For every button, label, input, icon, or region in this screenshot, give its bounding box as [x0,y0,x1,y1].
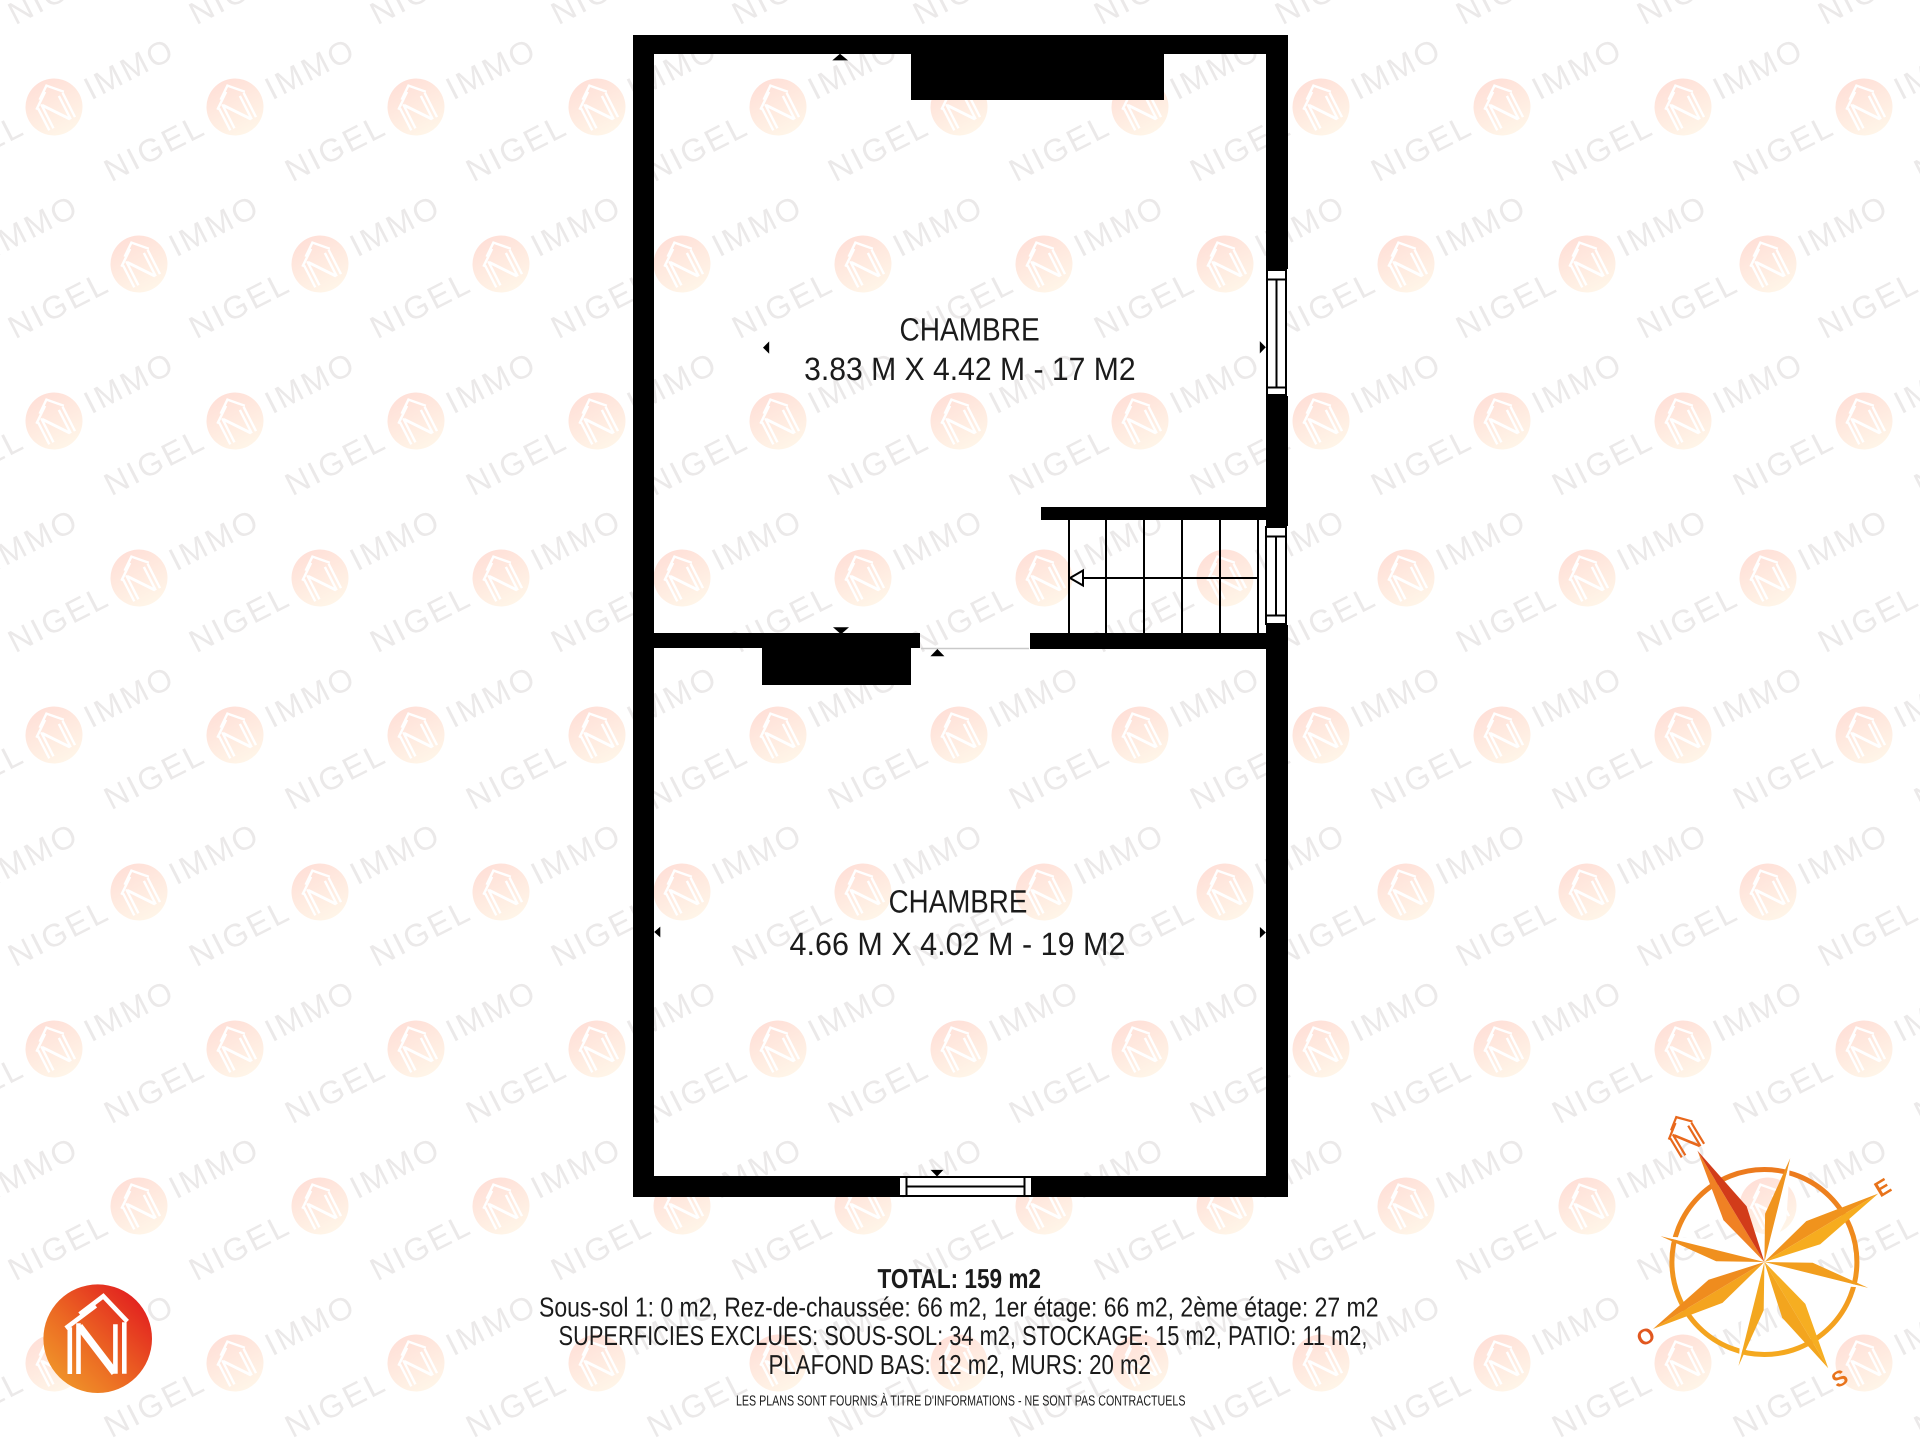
svg-text:LES PLANS SONT FOURNIS À TITRE: LES PLANS SONT FOURNIS À TITRE D'INFORMA… [736,1393,1186,1410]
svg-text:S: S [1827,1364,1852,1393]
svg-text:TOTAL: 159 m2: TOTAL: 159 m2 [878,1263,1042,1294]
svg-text:CHAMBRE: CHAMBRE [889,883,1028,919]
svg-text:O: O [1632,1321,1660,1351]
svg-text:PLAFOND BAS: 12 m2, MURS: 20 m: PLAFOND BAS: 12 m2, MURS: 20 m2 [769,1349,1152,1380]
svg-text:Sous-sol 1: 0 m2, Rez-de-chaus: Sous-sol 1: 0 m2, Rez-de-chaussée: 66 m2… [539,1292,1379,1323]
svg-text:E: E [1870,1173,1895,1202]
svg-text:SUPERFICIES EXCLUES: SOUS-SOL:: SUPERFICIES EXCLUES: SOUS-SOL: 34 m2, ST… [559,1320,1368,1351]
svg-text:3.83 M X 4.42 M - 17 M2: 3.83 M X 4.42 M - 17 M2 [804,351,1136,387]
svg-text:4.66 M X 4.02 M - 19 M2: 4.66 M X 4.02 M - 19 M2 [790,926,1126,962]
svg-text:CHAMBRE: CHAMBRE [900,312,1040,348]
